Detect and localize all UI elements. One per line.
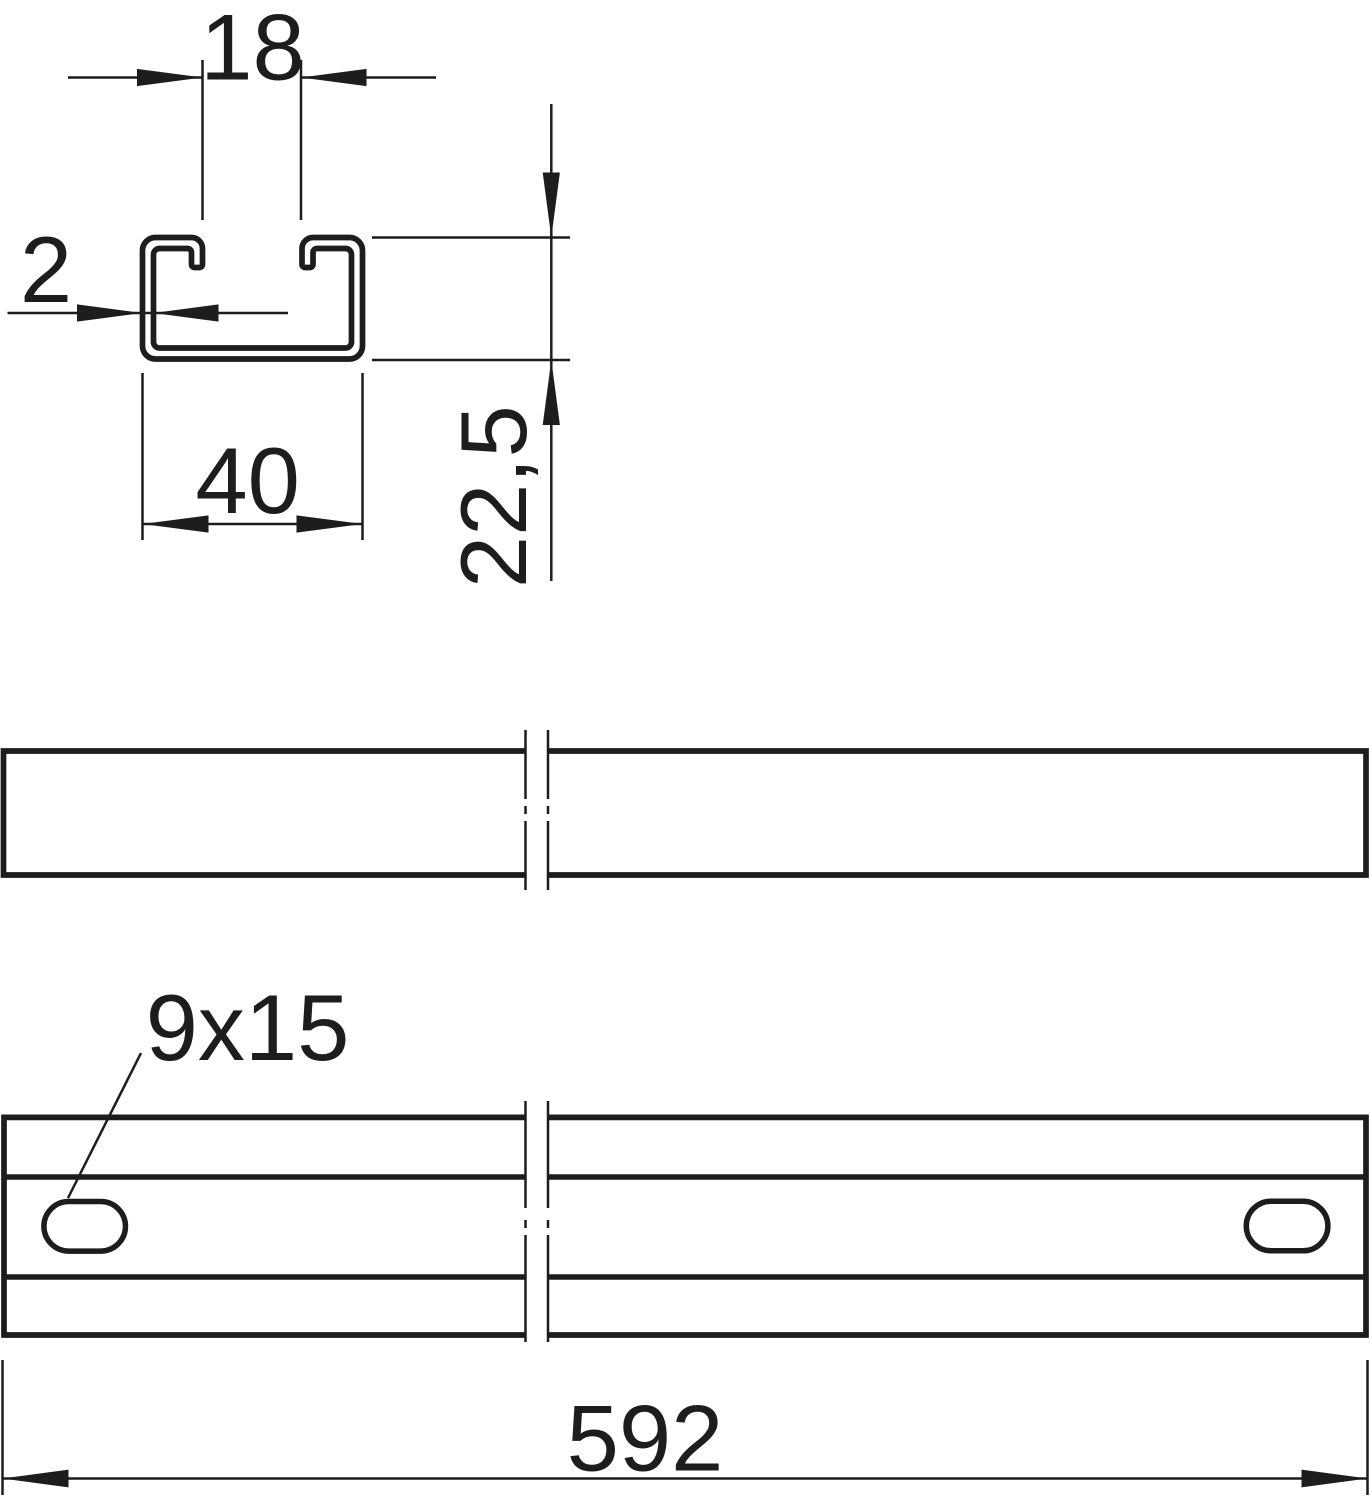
svg-text:2: 2 (20, 217, 72, 322)
svg-text:22,5: 22,5 (441, 405, 546, 588)
svg-text:592: 592 (567, 1386, 724, 1491)
svg-text:9x15: 9x15 (146, 975, 350, 1080)
svg-text:18: 18 (200, 0, 305, 100)
svg-text:40: 40 (195, 428, 300, 533)
